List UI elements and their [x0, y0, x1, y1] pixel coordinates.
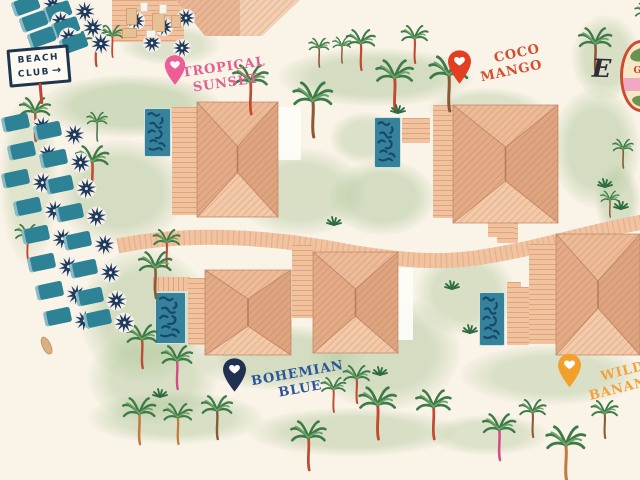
parasol-icon	[42, 245, 68, 271]
palm-tree-icon	[407, 35, 449, 94]
leaf-icon	[629, 45, 640, 64]
deck-chair	[159, 4, 167, 14]
parasol-icon	[28, 189, 54, 215]
villa-roof	[453, 105, 558, 223]
patio	[397, 268, 413, 340]
wooden-deck	[172, 107, 197, 215]
swimming-pool	[479, 292, 505, 346]
wooden-deck	[402, 118, 430, 143]
compass-letter-e: E	[591, 54, 611, 84]
palm-tree-icon	[184, 379, 217, 426]
brand-badge-text: GY	[623, 66, 640, 76]
palm-tree-icon	[271, 61, 313, 120]
palm-tree-icon	[297, 27, 319, 58]
parasol-icon	[48, 113, 74, 139]
wooden-deck	[507, 287, 529, 345]
grass-tuft-icon	[454, 315, 470, 326]
brand-badge-oval: GY	[620, 40, 640, 112]
palm-tree-icon	[144, 329, 177, 376]
villa-roof	[556, 234, 640, 355]
pool-water-icon	[480, 293, 504, 345]
palm-tree-icon	[396, 371, 433, 424]
parasol-icon	[58, 299, 84, 325]
palm-tree-icon	[524, 405, 566, 464]
palm-tree-icon	[560, 10, 595, 60]
parasol-icon	[90, 279, 116, 305]
palm-tree-icon	[464, 396, 499, 446]
swimming-pool	[144, 108, 171, 157]
parasol-icon	[70, 195, 96, 221]
wooden-deck	[153, 277, 190, 291]
brand-badge: GY	[620, 40, 640, 112]
beach-club-sign: BEACH CLUB→	[6, 44, 71, 87]
parasol-icon	[36, 217, 62, 243]
parasol-icon	[162, 28, 182, 48]
deck-furniture	[126, 8, 137, 25]
grass-tuft-icon	[436, 271, 452, 282]
villa-roof	[205, 270, 291, 355]
swimming-pool	[374, 117, 401, 168]
palm-tree-icon	[355, 40, 395, 96]
grass-tuft-icon	[364, 357, 380, 368]
palm-tree-icon	[120, 234, 155, 284]
parasol-icon	[54, 141, 80, 167]
parasol-icon	[84, 251, 110, 277]
deck-chair	[146, 30, 156, 38]
villa-roof	[313, 252, 398, 353]
parasol-icon	[50, 273, 76, 299]
pool-water-icon	[375, 118, 400, 167]
parasol-icon	[98, 301, 124, 327]
wooden-deck	[292, 245, 313, 318]
leaf-icon	[631, 94, 640, 109]
arrow-right-icon: →	[51, 63, 61, 77]
deck-furniture	[171, 15, 181, 28]
beach-club-sign-board: BEACH CLUB→	[6, 44, 71, 87]
grass-tuft-icon	[144, 379, 160, 390]
grass-tuft-icon	[382, 95, 398, 106]
parasol-icon-wrap	[162, 28, 182, 48]
villa-pin-wild-banana	[556, 352, 583, 389]
grass-tuft-icon	[318, 207, 334, 218]
palm-tree-icon	[601, 128, 623, 159]
parasol-icon	[78, 223, 104, 249]
palm-tree-icon	[271, 402, 308, 455]
wooden-deck	[529, 244, 559, 344]
palm-tree-icon	[622, 0, 640, 25]
wooden-deck	[488, 222, 514, 237]
resort-map-canvas: TROPICAL SUNSET COCO MANGO BOHEMIAN BLUE…	[0, 0, 640, 480]
villa-roof	[197, 102, 278, 217]
brand-badge-band	[623, 78, 640, 91]
grass-tuft-icon	[589, 169, 605, 180]
palm-tree-icon	[104, 380, 139, 430]
pool-water-icon	[145, 109, 170, 156]
deck-chair	[140, 2, 148, 12]
grass-tuft-icon	[605, 191, 621, 202]
parasol-icon	[16, 161, 42, 187]
parasol-icon	[60, 167, 86, 193]
deck-furniture	[122, 28, 137, 38]
